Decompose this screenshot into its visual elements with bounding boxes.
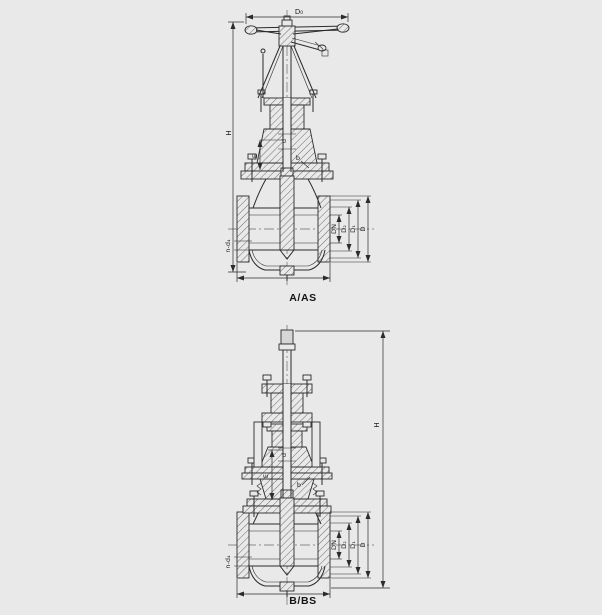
- flange-bolt: [250, 491, 258, 496]
- label-stem-d: d: [280, 139, 288, 143]
- label-b: b: [297, 481, 301, 489]
- gate-wedge: [280, 176, 294, 250]
- drawing-sheet: D₀ H d E b: [0, 0, 602, 615]
- plate-bolt: [303, 375, 311, 380]
- flange-bolt: [316, 491, 324, 496]
- label-d1: D₁: [349, 225, 357, 233]
- left-end-flange: [237, 512, 249, 578]
- gate-wedge: [280, 498, 294, 566]
- flange-bolt: [318, 154, 326, 159]
- handwheel-rim-left: [245, 26, 257, 34]
- dimension-flange-stack: DN D₂ D₁ D: [330, 512, 371, 578]
- stem-nut-cap: [284, 16, 290, 20]
- drain-boss: [280, 582, 294, 591]
- handwheel-rim-right: [337, 24, 349, 32]
- dimension-handwheel-diameter: D₀: [246, 8, 348, 24]
- valve-technical-drawing: D₀ H d E b: [0, 0, 602, 615]
- yoke-column: [312, 422, 320, 467]
- label-b: b: [296, 154, 300, 162]
- yoke-arm: [258, 46, 280, 98]
- label-d: D: [359, 226, 367, 231]
- label-stem-d: d: [280, 453, 288, 457]
- left-end-flange: [237, 196, 249, 262]
- figure-b-gate-valve: H d E b: [224, 325, 390, 607]
- label-bolt-holes: n-d₄: [224, 555, 232, 569]
- label-h: H: [373, 422, 381, 427]
- handwheel: [245, 16, 349, 56]
- label-h: H: [225, 130, 233, 135]
- handwheel-hub: [279, 26, 295, 46]
- stem-top-cap: [281, 330, 293, 344]
- drain-boss: [280, 266, 294, 275]
- label-bolt-holes: n-d₄: [224, 239, 232, 253]
- stem-collar: [279, 344, 295, 350]
- label-e: E: [251, 154, 259, 158]
- label-d1: D₁: [349, 541, 357, 549]
- label-d2: D₂: [340, 225, 348, 233]
- label-dn: DN: [330, 224, 338, 234]
- figure-a-caption: A/AS: [289, 292, 317, 304]
- dimension-flange-stack: DN D₂ D₁ D: [330, 196, 371, 262]
- label-d0: D₀: [295, 8, 303, 16]
- label-d2: D₂: [340, 541, 348, 549]
- label-d: D: [359, 542, 367, 547]
- label-dn: DN: [330, 540, 338, 550]
- handwheel-spoke: [293, 29, 338, 34]
- figure-b-caption: B/BS: [289, 595, 317, 607]
- label-e: E: [262, 474, 270, 478]
- plate-bolt: [263, 375, 271, 380]
- plate-bolt: [303, 422, 311, 427]
- plate-bolt: [263, 422, 271, 427]
- figure-a-gate-valve: D₀ H d E b: [224, 8, 374, 304]
- yoke-column: [254, 422, 262, 467]
- yoke-arm: [294, 46, 316, 98]
